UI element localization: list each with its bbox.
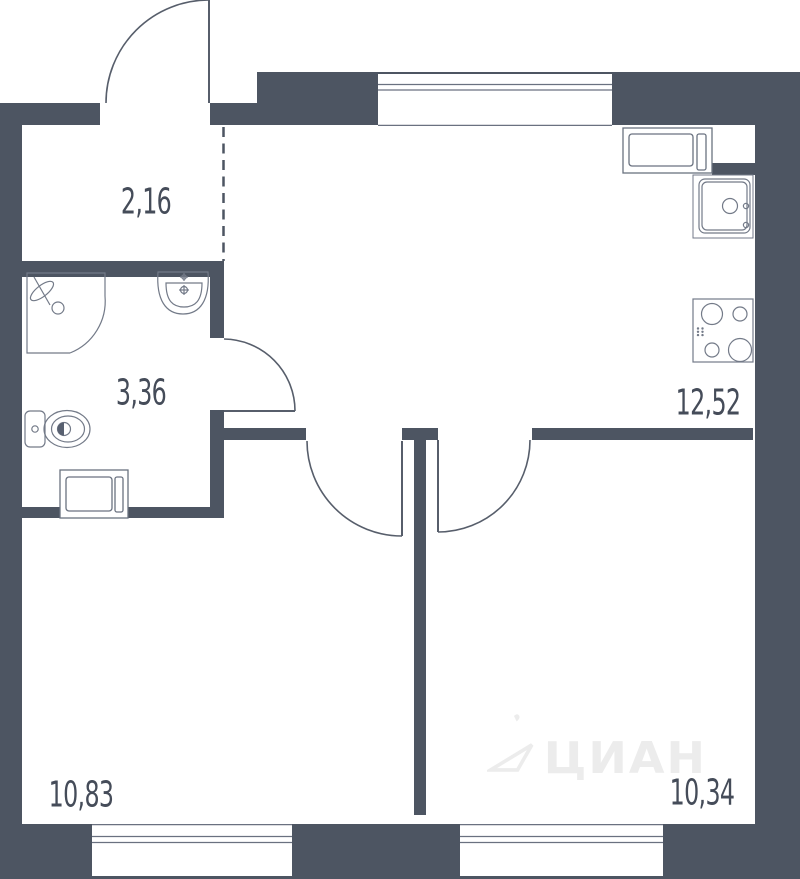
watermark-text: ЦИАН	[544, 741, 707, 776]
room-left-door	[307, 441, 402, 536]
area-label-hallway: 2,16	[121, 182, 171, 223]
kitchen-appliance-icon	[623, 128, 712, 173]
window-bottom-right	[460, 825, 663, 879]
entrance-door	[106, 0, 209, 103]
stove-icon	[693, 299, 753, 362]
kitchen-sink-icon	[693, 175, 753, 238]
window-top	[378, 73, 612, 125]
area-label-kitchen-living: 12,52	[676, 383, 741, 424]
floor-plan: 2,16 3,36 12,52 10,83 10,34 ЦИАН	[0, 0, 800, 879]
bathroom-door	[224, 339, 295, 411]
watermark-logo-icon	[487, 709, 534, 777]
shower-icon	[27, 273, 105, 353]
area-label-room-left: 10,83	[49, 775, 114, 816]
bathroom-sink-icon	[158, 272, 209, 314]
area-label-bathroom: 3,36	[116, 373, 166, 414]
watermark: ЦИАН	[487, 702, 707, 777]
washing-machine-icon	[60, 470, 128, 518]
window-bottom-left	[92, 825, 292, 879]
toilet-icon	[25, 411, 90, 448]
room-right-door	[438, 440, 530, 532]
